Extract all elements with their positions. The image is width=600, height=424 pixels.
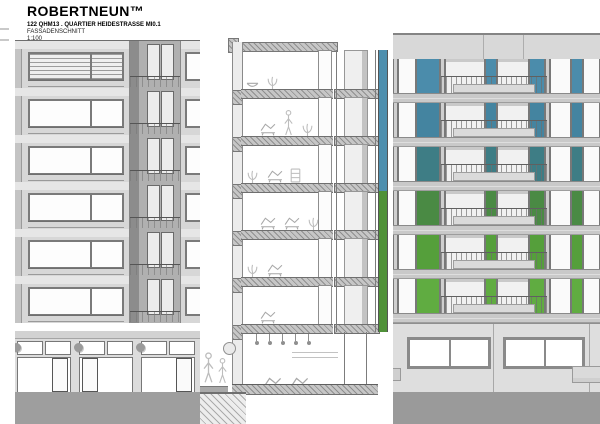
transom-window [107,341,133,355]
slab-band [393,269,600,279]
loggia-glazing [147,279,160,315]
ground-slab-cut [232,384,378,395]
chair-glyph [259,310,276,324]
door-reveal [362,286,367,325]
loggia [129,182,181,229]
elevation-floor [15,229,200,276]
chair-glyph [283,216,300,230]
transom-window [45,341,71,355]
loggia [129,41,181,88]
window [583,191,600,225]
elevation-floor [15,276,200,323]
window-mullion [90,195,92,220]
balcony-planter [453,304,535,313]
window [550,235,571,269]
window-in-section [318,50,332,91]
mesh-panel [571,191,583,225]
balcony-railing [441,208,547,226]
window-in-section [318,238,332,279]
person-glyph [217,358,228,384]
slab-band [393,181,600,191]
courtyard-elevation [393,33,600,392]
plant-glyph [246,264,259,277]
balcony-door [344,144,368,185]
balcony-door [344,191,368,232]
edge-pier [15,190,22,229]
window [398,59,416,93]
window [28,99,124,128]
street-elevation [15,40,200,393]
loggia-glazing [161,232,174,268]
window-mullion [90,289,92,314]
elevation-floor [393,191,600,235]
counter-line [292,352,338,358]
ground-window [407,337,491,369]
storefront-bay [79,341,133,391]
passers-by [202,352,228,384]
storefront-bay [17,341,71,391]
plant-glyph [246,170,259,183]
chair-glyph [259,122,276,136]
window [550,59,571,93]
plant-glyph [301,123,314,136]
balcony-planter [453,260,535,269]
window [583,235,600,269]
loggia-railing [130,217,180,228]
balcony-post [336,50,337,332]
earth-hatch [200,392,246,424]
partial-window [185,287,200,316]
window [28,287,124,316]
window [28,52,124,81]
slab-band [393,313,600,323]
door-reveal [362,192,367,231]
balcony-slab-cut [334,324,380,334]
awning-dot [136,343,145,352]
balcony-door [344,285,368,326]
window [398,103,416,137]
mesh-panel [416,59,440,93]
balcony-railing [441,120,547,138]
balcony-door [344,50,368,91]
fold-mark [0,28,9,41]
elevation-floor [393,235,600,279]
mesh-panel [416,235,440,269]
courtyard-ground [393,392,600,424]
partial-window [185,146,200,175]
edge-pier [15,284,22,323]
shop-door [82,358,98,392]
juliet-railing [28,127,124,134]
balcony-planter [453,216,535,225]
entrance-sign [572,366,600,383]
partial-window [185,193,200,222]
parapet-joint [523,35,524,61]
shop-glazing [141,357,195,393]
window-mullion [90,54,92,79]
shop-glazing [17,357,71,393]
window [583,147,600,181]
pendant-light [256,334,257,341]
window [550,191,571,225]
mesh-panel [571,147,583,181]
loggia-glazing [161,91,174,127]
shelf-glyph [290,168,301,183]
slab-band [393,225,600,235]
elevation-floor [15,135,200,182]
juliet-railing [28,80,124,87]
loggia-railing [130,311,180,322]
door-reveal [362,145,367,184]
door-reveal [362,239,367,278]
elevation-floor [15,41,200,88]
window [583,59,600,93]
loggia-railing [130,170,180,181]
loggia-glazing [147,185,160,221]
balcony-planter [453,128,535,137]
window [550,103,571,137]
elevation-floor [15,182,200,229]
mesh-panel [571,59,583,93]
window [28,240,124,269]
interior-furniture [242,157,322,183]
window [398,279,416,313]
balcony-door [344,97,368,138]
balcony-railing [441,76,547,94]
window [583,279,600,313]
facade-panel-strip [378,238,388,285]
partial-window [185,240,200,269]
person-glyph [283,110,294,136]
juliet-railing [28,268,124,275]
chair-glyph [259,216,276,230]
edge-pier [15,143,22,182]
pendant-light [282,334,283,341]
balcony-planter [453,84,535,93]
courtyard-ground-floor [393,323,600,392]
pendant-light [269,334,270,341]
partial-window [185,52,200,81]
loggia-glazing [161,44,174,80]
mesh-panel [416,279,440,313]
drawing-sheet: ROBERTNEUN™ 122 QHM13 . QUARTIER HEIDEST… [0,0,600,424]
loggia-railing [130,123,180,134]
facade-panel-strip [378,191,388,238]
window-in-section [318,191,332,232]
parapet-joint [483,35,484,61]
drawing-type: FASSADENSCHNITT [27,29,161,36]
balcony-door [344,238,368,279]
storefront-level [15,331,200,393]
door-reveal [362,98,367,137]
interior-furniture [242,63,322,89]
loggia-railing [130,264,180,275]
window-in-section [318,144,332,185]
window [550,279,571,313]
window-in-section [318,97,332,138]
facade-panel-strip [378,97,388,144]
window [398,147,416,181]
balcony-railing [441,164,547,182]
plant-glyph [266,76,279,89]
mesh-panel [571,103,583,137]
storefront-lintel [15,331,200,339]
elevation-floor [393,279,600,323]
shop-door [176,358,192,392]
loggia-glazing [147,232,160,268]
balcony-post [375,50,376,332]
transom-window [169,341,195,355]
juliet-railing [28,315,124,322]
elevation-floor [15,88,200,135]
juliet-railing [28,221,124,228]
window-mullion [90,148,92,173]
mesh-panel [416,191,440,225]
loggia [129,276,181,323]
mesh-panel [571,279,583,313]
window [398,191,416,225]
pendant-light [295,334,296,341]
window-mullion [90,101,92,126]
storefront-bay [141,341,195,391]
window [28,193,124,222]
window [583,103,600,137]
window-mullion [90,242,92,267]
loggia-glazing [161,138,174,174]
facade-panel-strip [378,285,388,332]
balcony-railing [441,252,547,270]
edge-pier [15,49,22,88]
slab-band [393,93,600,103]
facade-joint [493,324,494,392]
window-mullion [544,340,546,366]
elevation-floor [393,147,600,191]
person-glyph [202,352,215,384]
window-mullion [449,340,451,366]
balcony-railing [441,296,547,314]
studio-name: ROBERTNEUN™ [27,4,161,19]
awning-dot [74,343,83,352]
elevation-floor [393,59,600,103]
juliet-railing [28,174,124,181]
title-block: ROBERTNEUN™ 122 QHM13 . QUARTIER HEIDEST… [27,4,161,43]
window [28,146,124,175]
window-in-section [318,285,332,326]
partial-window [185,99,200,128]
ground-glazing-line [366,332,367,384]
window [550,147,571,181]
loggia [129,135,181,182]
floor-slab-cut [241,324,333,334]
project-line: 122 QHM13 . QUARTIER HEIDESTRASSE MI0.1 [27,22,161,29]
loggia [129,229,181,276]
door-reveal [362,51,367,90]
facade-panel-strip [378,50,388,97]
mesh-panel [416,103,440,137]
mesh-panel [416,147,440,181]
street-ground [15,392,200,424]
loggia-railing [130,76,180,87]
shop-glazing [79,357,133,393]
elevation-floor [393,103,600,147]
bowl-glyph [246,82,259,89]
shop-door [52,358,68,392]
facade-panel-strip [378,144,388,191]
facade-section [226,38,386,392]
ground-window [503,337,585,369]
chair-glyph [266,169,283,183]
ground-glazing-line [344,332,345,384]
chair-glyph [266,263,283,277]
parapet-band [393,33,600,62]
mesh-panel [571,235,583,269]
pendant-light [308,334,309,341]
loggia-glazing [147,44,160,80]
loggia-glazing [161,279,174,315]
loggia-glazing [147,91,160,127]
edge-pier [15,96,22,135]
interior-furniture [242,251,322,277]
edge-pier [15,237,22,276]
balcony-planter [453,172,535,181]
facade-tab [393,368,401,381]
window [398,235,416,269]
loggia [129,88,181,135]
loggia-glazing [161,185,174,221]
slab-band [393,137,600,147]
loggia-glazing [147,138,160,174]
